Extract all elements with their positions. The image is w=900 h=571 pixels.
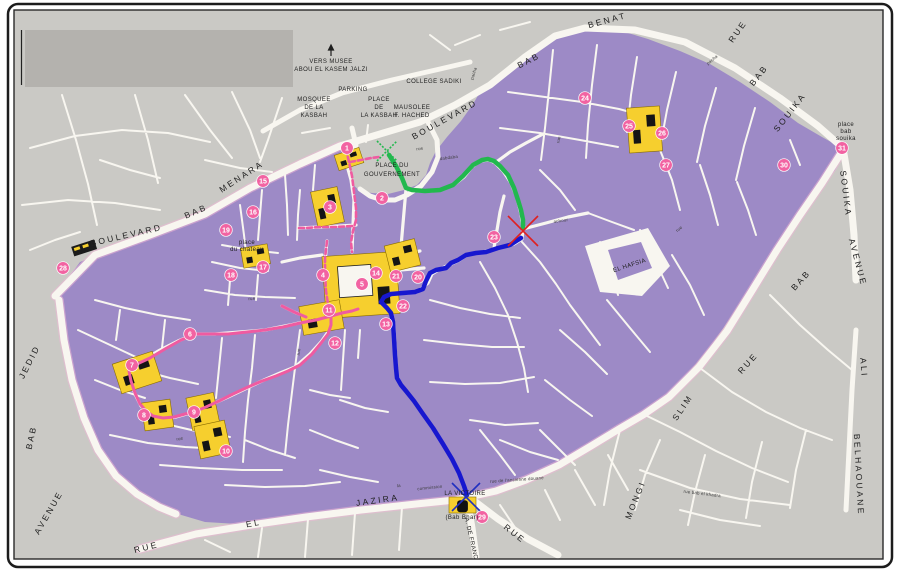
place-label: F. HACHED bbox=[394, 113, 430, 119]
map-canvas: 1234567891011121314151617181920212223242… bbox=[0, 0, 900, 571]
marker-20: 20 bbox=[412, 271, 425, 284]
place-label: PARKING bbox=[338, 87, 367, 93]
marker-number: 11 bbox=[325, 308, 333, 315]
small-street-label: rue bbox=[416, 146, 424, 152]
marker-24: 24 bbox=[579, 92, 592, 105]
landmark-detail bbox=[246, 257, 253, 264]
place-label: DE LA bbox=[304, 105, 323, 111]
place-label: DE bbox=[374, 105, 383, 111]
marker-number: 6 bbox=[188, 332, 192, 339]
marker-number: 31 bbox=[838, 146, 846, 153]
gate-arch bbox=[457, 500, 468, 512]
marker-number: 29 bbox=[478, 515, 486, 522]
marker-4: 4 bbox=[317, 269, 330, 282]
marker-number: 17 bbox=[259, 265, 267, 272]
small-street-label: rue bbox=[248, 296, 256, 302]
place-label: PLACE bbox=[368, 97, 390, 103]
marker-30: 30 bbox=[778, 159, 791, 172]
marker-3: 3 bbox=[324, 201, 337, 214]
place-label: VERS MUSEE bbox=[309, 59, 352, 65]
marker-23: 23 bbox=[488, 231, 501, 244]
marker-14: 14 bbox=[370, 267, 383, 280]
street-label: ALI bbox=[858, 357, 869, 378]
landmark-detail bbox=[159, 405, 167, 413]
marker-16: 16 bbox=[247, 206, 260, 219]
marker-number: 3 bbox=[328, 205, 332, 212]
marker-19: 19 bbox=[220, 224, 233, 237]
marker-number: 13 bbox=[382, 322, 390, 329]
place-label: COLLEGE SADIKI bbox=[406, 79, 461, 85]
marker-number: 22 bbox=[399, 304, 407, 311]
marker-10: 10 bbox=[220, 445, 233, 458]
marker-number: 30 bbox=[780, 163, 788, 170]
marker-number: 16 bbox=[249, 210, 257, 217]
marker-number: 19 bbox=[222, 228, 230, 235]
marker-25: 25 bbox=[623, 120, 636, 133]
marker-number: 8 bbox=[142, 413, 146, 420]
marker-number: 26 bbox=[658, 131, 666, 138]
medina-map: 1234567891011121314151617181920212223242… bbox=[0, 0, 900, 571]
place-label: bab bbox=[840, 129, 851, 135]
marker-number: 25 bbox=[625, 124, 633, 131]
marker-number: 12 bbox=[331, 341, 339, 348]
marker-6: 6 bbox=[184, 328, 197, 341]
marker-11: 11 bbox=[323, 304, 336, 317]
place-label: place bbox=[838, 122, 855, 128]
place-label: LA VICTOIRE bbox=[444, 491, 485, 497]
marker-number: 23 bbox=[490, 235, 498, 242]
marker-number: 9 bbox=[192, 410, 196, 417]
marker-31: 31 bbox=[836, 142, 849, 155]
marker-22: 22 bbox=[397, 300, 410, 313]
place-label: MAUSOLEE bbox=[394, 105, 431, 111]
landmark-detail bbox=[633, 130, 641, 144]
marker-number: 10 bbox=[222, 449, 230, 456]
marker-17: 17 bbox=[257, 261, 270, 274]
marker-number: 18 bbox=[227, 273, 235, 280]
marker-number: 1 bbox=[345, 146, 349, 153]
place-label: du chateau bbox=[230, 247, 264, 253]
marker-8: 8 bbox=[138, 409, 151, 422]
marker-12: 12 bbox=[329, 337, 342, 350]
place-label: ABOU EL KASEM JALZI bbox=[294, 67, 367, 73]
marker-21: 21 bbox=[390, 270, 403, 283]
marker-27: 27 bbox=[660, 159, 673, 172]
marker-number: 15 bbox=[259, 179, 267, 186]
small-street-label: rue bbox=[296, 348, 302, 356]
place-label: place bbox=[239, 240, 256, 246]
place-label: souika bbox=[836, 136, 856, 142]
place-label: GOUVERNEMENT bbox=[364, 172, 420, 178]
marker-number: 24 bbox=[581, 96, 589, 103]
marker-number: 27 bbox=[662, 163, 670, 170]
marker-15: 15 bbox=[257, 175, 270, 188]
marker-number: 21 bbox=[392, 274, 400, 281]
place-label: PLACE DU bbox=[375, 163, 408, 169]
marker-number: 20 bbox=[414, 275, 422, 282]
marker-7: 7 bbox=[126, 359, 139, 372]
marker-number: 4 bbox=[321, 273, 325, 280]
marker-2: 2 bbox=[376, 192, 389, 205]
marker-28: 28 bbox=[57, 262, 70, 275]
marker-13: 13 bbox=[380, 318, 393, 331]
marker-26: 26 bbox=[656, 127, 669, 140]
marker-1: 1 bbox=[341, 142, 354, 155]
marker-number: 28 bbox=[59, 266, 67, 273]
erased-legend-area bbox=[25, 30, 293, 87]
place-label: (Bab Bhar) bbox=[445, 515, 478, 521]
place-label: LA KASBAH bbox=[361, 113, 398, 119]
marker-5: 5 bbox=[356, 278, 369, 291]
marker-number: 5 bbox=[360, 282, 364, 289]
marker-number: 2 bbox=[380, 196, 384, 203]
marker-18: 18 bbox=[225, 269, 238, 282]
place-label: MOSQUEE bbox=[297, 97, 330, 103]
place-label: KASBAH bbox=[301, 113, 328, 119]
marker-9: 9 bbox=[188, 406, 201, 419]
landmark-detail bbox=[646, 114, 655, 126]
marker-number: 14 bbox=[372, 271, 380, 278]
marker-number: 7 bbox=[130, 363, 134, 370]
